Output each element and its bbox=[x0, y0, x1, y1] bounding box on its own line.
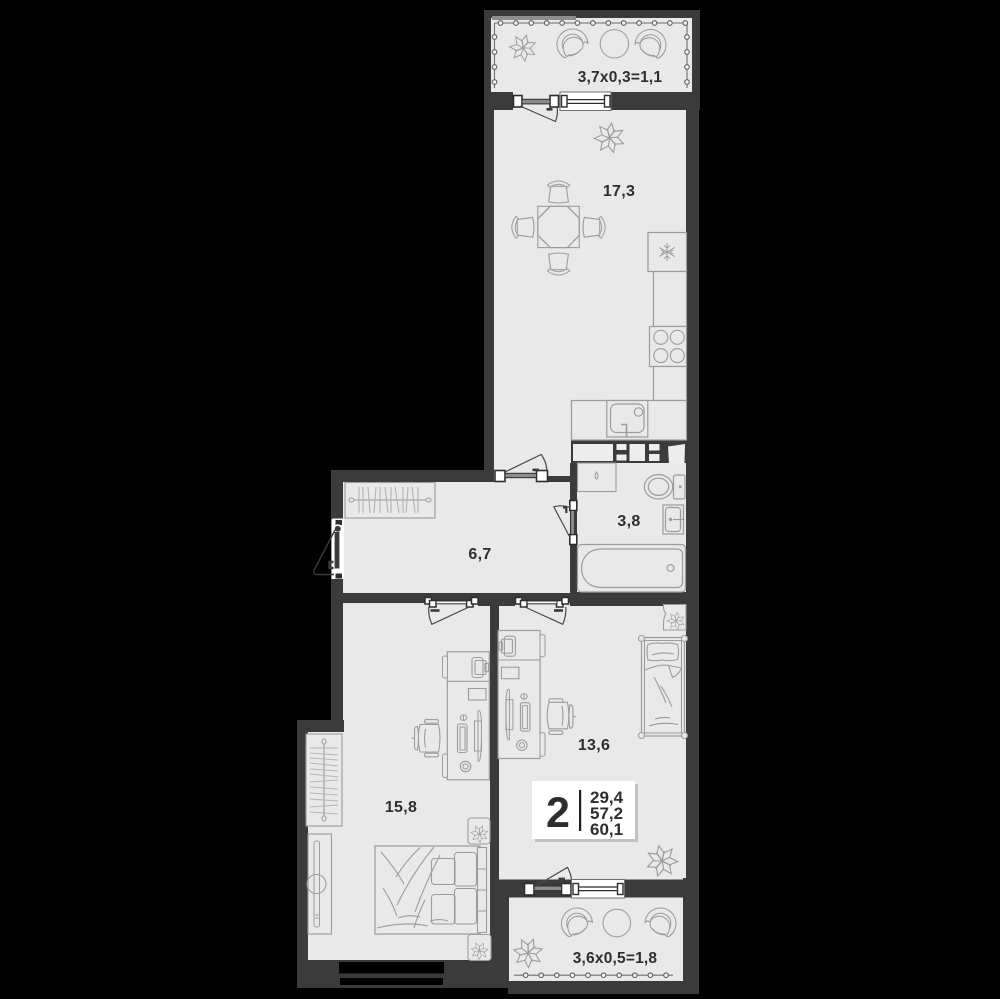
svg-text:3,7x0,3=1,1: 3,7x0,3=1,1 bbox=[578, 69, 663, 86]
svg-text:6,7: 6,7 bbox=[468, 546, 491, 563]
svg-text:13,6: 13,6 bbox=[578, 737, 610, 754]
svg-text:15,8: 15,8 bbox=[385, 799, 417, 816]
svg-text:2: 2 bbox=[546, 789, 570, 837]
svg-text:17,3: 17,3 bbox=[603, 183, 635, 200]
svg-text:60,1: 60,1 bbox=[590, 820, 623, 839]
svg-text:3,6x0,5=1,8: 3,6x0,5=1,8 bbox=[573, 950, 658, 967]
svg-text:3,8: 3,8 bbox=[617, 513, 640, 530]
